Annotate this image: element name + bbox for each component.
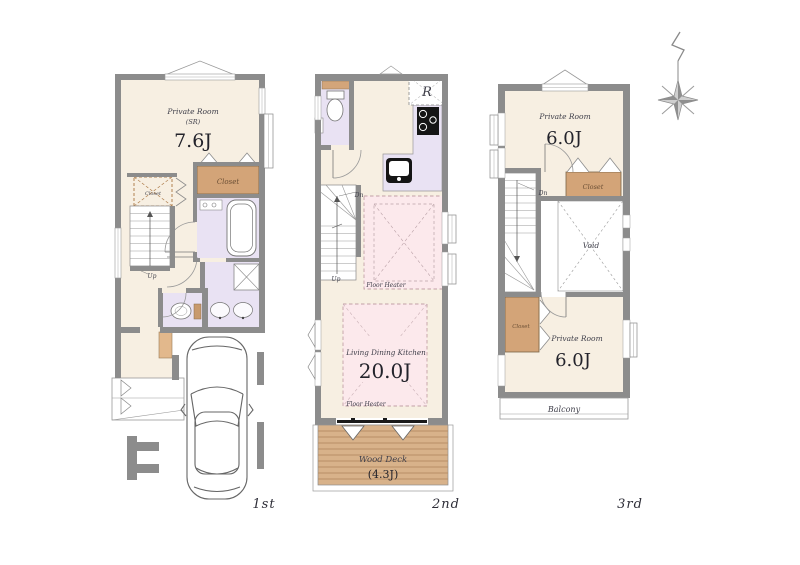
void-label: Void [583,241,600,250]
porch [112,378,184,420]
closet-left-label: Closet [512,324,530,330]
ldk-size: 20.0J [359,359,412,383]
fridge-label: R [421,85,432,100]
closet-top-label: Closet [583,183,604,191]
floor-plan-2nd: R Floor Heater Living Dining Kitchen 20.… [300,50,475,510]
floor-heater-upper [364,196,444,289]
room-3f-bottom-name: Private Room [550,334,602,343]
wood-deck-size: (4.3J) [368,468,399,481]
stairs-up-label: Up [332,276,341,283]
stairs-dn-label: Dn [538,190,548,197]
wood-deck-name: Wood Deck [359,455,407,465]
balcony-label: Balcony [547,405,581,414]
stairs-2f [318,185,356,280]
bay-window-icon [542,70,588,85]
stairs-dn-label: Dn [354,192,364,199]
floor-label-3rd: 3rd [610,497,650,512]
room-3f-top-size: 6.0J [546,128,582,149]
stairs-up-label: Up [148,273,157,280]
floorplan-image: Private Room (SR) 7.6J Closet Closet Up [0,0,800,565]
floor-plan-3rd: Private Room 6.0J Closet Dn Void Closet … [480,50,655,440]
shoe-cabinet [159,332,172,358]
ldk-name: Living Dining Kitchen [345,348,426,357]
floor-heater-lower-label: Floor Heater [345,401,386,408]
bay-window-icon [380,66,402,74]
room-3f-top-name: Private Room [538,112,590,121]
room-1f-name: Private Room [166,107,218,116]
closet-small-label: Closet [145,191,162,197]
room-1f-sub: (SR) [186,118,201,126]
casement-window-icon [308,323,315,347]
car-top-view-icon [181,337,253,499]
bay-window-icon [165,61,235,75]
sliding-door [336,418,428,425]
north-compass-icon [650,28,706,124]
casement-window-icon [308,355,315,379]
floor-label-2nd: 2nd [426,497,466,512]
room-1f-size: 7.6J [174,130,212,152]
room-3f-bottom-size: 6.0J [555,350,591,371]
washing-machine-icon [234,264,259,290]
closet-main-label: Closet [217,178,240,186]
stairs-1f [130,206,170,274]
kitchen-sink-icon [386,158,412,183]
stove-icon [417,107,439,135]
stairs-3f [503,173,536,292]
floor-plan-1st: Private Room (SR) 7.6J Closet Closet Up [100,50,300,520]
floor-heater-upper-label: Floor Heater [365,282,406,289]
floor-label-1st: 1st [244,497,284,512]
toilet-icon [171,303,201,319]
